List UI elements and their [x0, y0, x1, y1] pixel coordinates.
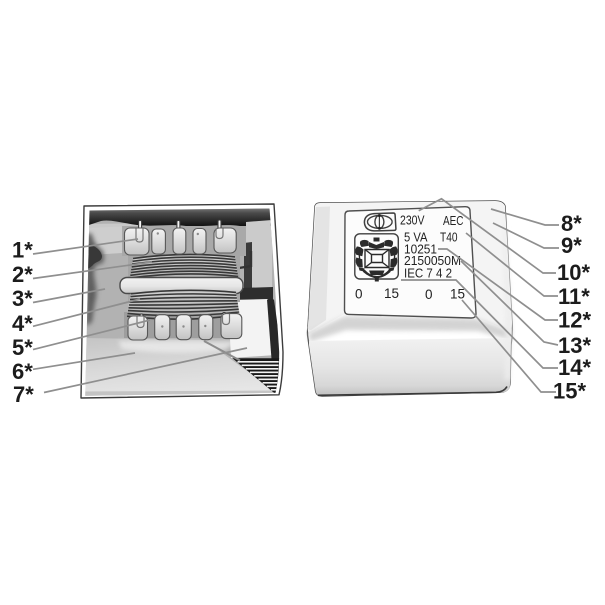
svg-text:2*: 2*: [12, 262, 33, 287]
svg-text:14*: 14*: [558, 355, 591, 380]
svg-text:T40: T40: [440, 230, 458, 244]
svg-text:15: 15: [450, 287, 465, 302]
svg-text:0: 0: [425, 287, 433, 302]
svg-text:9*: 9*: [561, 233, 582, 258]
svg-text:11*: 11*: [558, 284, 590, 309]
svg-text:15: 15: [384, 286, 399, 301]
svg-text:12*: 12*: [558, 308, 591, 333]
svg-text:AEC: AEC: [443, 214, 464, 228]
svg-text:IEC 7 4 2: IEC 7 4 2: [404, 266, 452, 280]
svg-text:7*: 7*: [13, 382, 34, 407]
svg-text:6*: 6*: [12, 359, 33, 384]
svg-text:15*: 15*: [553, 379, 586, 404]
svg-text:4*: 4*: [12, 311, 33, 336]
svg-text:5*: 5*: [12, 335, 33, 360]
svg-text:1*: 1*: [12, 238, 33, 263]
svg-text:0: 0: [355, 287, 363, 302]
svg-text:10*: 10*: [557, 260, 590, 285]
svg-text:230V: 230V: [400, 214, 425, 228]
svg-text:3*: 3*: [12, 286, 33, 311]
